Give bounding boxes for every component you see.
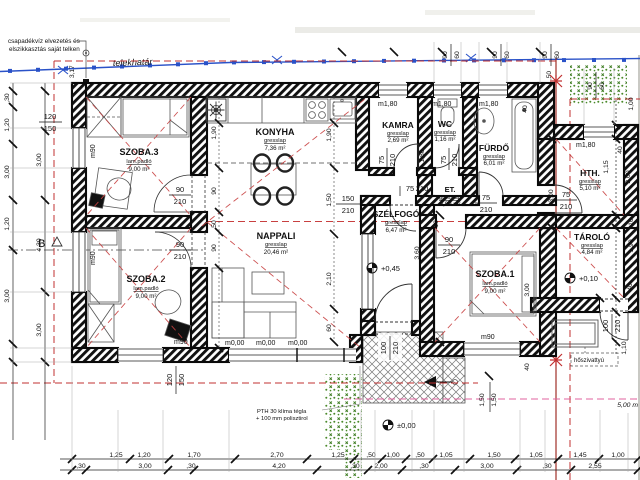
svg-text:gresslap: gresslap: [264, 138, 286, 144]
svg-text:210: 210: [174, 197, 187, 206]
svg-text:m1,80: m1,80: [479, 101, 499, 108]
svg-text:75: 75: [406, 184, 414, 193]
svg-text:2,10: 2,10: [326, 272, 333, 285]
svg-text:3,17: 3,17: [69, 65, 76, 78]
svg-text:,30: ,30: [350, 463, 360, 470]
svg-text:+0,10: +0,10: [579, 274, 598, 283]
svg-text:210: 210: [480, 205, 493, 214]
svg-text:2,70: 2,70: [270, 452, 283, 459]
svg-text:1,25: 1,25: [331, 452, 344, 459]
svg-text:100: 100: [601, 320, 610, 333]
svg-text:2,00: 2,00: [374, 463, 387, 470]
svg-text:75: 75: [562, 190, 570, 199]
svg-text:1,16 m²: 1,16 m²: [435, 136, 456, 143]
svg-text:1,00: 1,00: [628, 97, 635, 110]
svg-text:120: 120: [165, 374, 174, 387]
svg-text:ET.: ET.: [445, 185, 456, 194]
svg-text:120: 120: [44, 112, 57, 121]
svg-text:40: 40: [627, 283, 634, 291]
svg-text:,50: ,50: [366, 452, 376, 459]
svg-text:KAMRA: KAMRA: [382, 120, 414, 130]
svg-text:60: 60: [454, 51, 461, 59]
svg-text:1,90: 1,90: [211, 126, 218, 139]
svg-text:7,36 m²: 7,36 m²: [265, 145, 286, 152]
svg-text:csapadékvíz elvezetés és: csapadékvíz elvezetés és: [8, 38, 80, 45]
svg-text:3,00: 3,00: [524, 283, 531, 296]
svg-text:90: 90: [211, 244, 218, 252]
svg-text:hőszivattyú: hőszivattyú: [574, 358, 604, 364]
svg-text:3,60: 3,60: [414, 246, 421, 259]
svg-text:210: 210: [391, 342, 400, 355]
svg-text:210: 210: [174, 252, 187, 261]
svg-text:6,01 m²: 6,01 m²: [484, 160, 505, 167]
svg-text:10: 10: [433, 220, 440, 228]
svg-text:SZOBA.1: SZOBA.1: [475, 269, 514, 279]
svg-text:1,20: 1,20: [137, 452, 150, 459]
svg-text:60: 60: [554, 51, 561, 59]
svg-text:210: 210: [613, 320, 622, 333]
svg-text:3,00: 3,00: [36, 153, 43, 166]
svg-text:elszikkasztás saját telken: elszikkasztás saját telken: [9, 46, 80, 53]
svg-text:lam.padló: lam.padló: [126, 159, 151, 165]
svg-text:100: 100: [379, 342, 388, 355]
svg-text:SZÉLFOGÓ: SZÉLFOGÓ: [373, 208, 420, 219]
svg-text:3,00: 3,00: [4, 165, 11, 178]
svg-text:m1,80: m1,80: [378, 101, 398, 108]
svg-text:1,25: 1,25: [109, 452, 122, 459]
svg-text:SZOBA.3: SZOBA.3: [119, 147, 158, 157]
svg-text:4,84 m²: 4,84 m²: [582, 249, 603, 256]
svg-text:9,00 m²: 9,00 m²: [136, 293, 157, 300]
svg-text:60: 60: [326, 324, 333, 332]
svg-text:1,90: 1,90: [326, 128, 333, 141]
svg-text:3,00: 3,00: [548, 189, 555, 202]
svg-text:75: 75: [439, 156, 448, 164]
svg-text:FÜRDŐ: FÜRDŐ: [479, 142, 510, 153]
svg-text:210: 210: [416, 184, 429, 193]
svg-text:150: 150: [342, 194, 355, 203]
svg-text:9,00 m²: 9,00 m²: [485, 288, 506, 295]
svg-text:40: 40: [522, 105, 529, 113]
svg-text:3,00: 3,00: [138, 463, 151, 470]
svg-text:90: 90: [176, 240, 184, 249]
svg-text:m90: m90: [90, 251, 97, 265]
svg-text:TÁROLÓ: TÁROLÓ: [574, 231, 610, 242]
svg-text:1,90: 1,90: [628, 239, 635, 252]
svg-text:m90: m90: [174, 339, 188, 346]
svg-text:gresslap: gresslap: [385, 220, 407, 226]
svg-text:,30: ,30: [76, 463, 86, 470]
svg-text:SZOBA.2: SZOBA.2: [126, 274, 165, 284]
svg-text:210: 210: [342, 206, 355, 215]
svg-text:NAPPALI: NAPPALI: [257, 231, 296, 241]
svg-text:210: 210: [450, 154, 459, 167]
svg-text:1,05: 1,05: [529, 452, 542, 459]
svg-text:75: 75: [377, 156, 386, 164]
svg-text:6,47 m²: 6,47 m²: [386, 227, 407, 234]
svg-text:90: 90: [211, 187, 218, 195]
svg-text:WC: WC: [438, 119, 452, 129]
svg-text:1,50: 1,50: [479, 393, 486, 406]
svg-text:4,30: 4,30: [36, 238, 43, 251]
svg-text:3,00: 3,00: [4, 289, 11, 302]
svg-text:lam.padló: lam.padló: [482, 281, 507, 287]
svg-text:50: 50: [211, 220, 218, 228]
svg-text:,30: ,30: [419, 463, 429, 470]
svg-text:1,10: 1,10: [621, 341, 628, 354]
svg-text:5,10 m²: 5,10 m²: [580, 185, 601, 192]
svg-text:+0,45: +0,45: [381, 264, 400, 273]
svg-text:1,50: 1,50: [491, 393, 498, 406]
svg-text:5,00 m: 5,00 m: [617, 402, 638, 409]
svg-text:1,05: 1,05: [439, 452, 452, 459]
svg-text:m0,00: m0,00: [256, 340, 276, 347]
svg-text:1,50: 1,50: [326, 193, 333, 206]
svg-text:1,50: 1,50: [487, 452, 500, 459]
svg-text:10: 10: [628, 218, 635, 226]
svg-text:m90: m90: [481, 334, 495, 341]
svg-text:1,00: 1,00: [611, 452, 624, 459]
svg-text:4,20: 4,20: [272, 463, 285, 470]
svg-text:PTH 30 klíma tégla: PTH 30 klíma tégla: [257, 409, 307, 415]
svg-text:m0,00: m0,00: [288, 340, 308, 347]
svg-text:90: 90: [445, 235, 453, 244]
svg-text:3,00: 3,00: [36, 323, 43, 336]
svg-text:m90: m90: [90, 144, 97, 158]
svg-text:+ 100 mm polisztirol: + 100 mm polisztirol: [256, 416, 308, 422]
svg-text:150: 150: [177, 374, 186, 387]
svg-text:telekhatár: telekhatár: [113, 57, 154, 68]
svg-text:m1,80: m1,80: [576, 142, 596, 149]
svg-text:210: 210: [443, 247, 456, 256]
svg-text:2,00: 2,00: [625, 170, 632, 183]
svg-text:40: 40: [617, 146, 624, 154]
svg-text:1,45: 1,45: [573, 452, 586, 459]
svg-text:KONYHA: KONYHA: [255, 127, 295, 137]
svg-text:2,69 m²: 2,69 m²: [388, 137, 409, 144]
svg-text:±0,00: ±0,00: [397, 421, 416, 430]
svg-text:75: 75: [482, 193, 490, 202]
svg-text:1,70: 1,70: [187, 452, 200, 459]
svg-text:1,20: 1,20: [4, 217, 11, 230]
svg-text:,50: ,50: [415, 452, 425, 459]
svg-text:1,20: 1,20: [4, 118, 11, 131]
svg-text:60: 60: [599, 82, 606, 90]
svg-text:0,99 m²: 0,99 m²: [440, 201, 461, 208]
svg-text:90: 90: [176, 185, 184, 194]
svg-text:60: 60: [504, 51, 511, 59]
svg-text:90: 90: [587, 82, 594, 90]
svg-text:3,00: 3,00: [480, 463, 493, 470]
svg-text:40: 40: [524, 363, 531, 371]
svg-text:gresslap: gresslap: [265, 242, 287, 248]
svg-text:,30: ,30: [4, 93, 11, 103]
svg-text:m0,00: m0,00: [225, 340, 245, 347]
svg-text:210: 210: [388, 154, 397, 167]
svg-text:210: 210: [560, 202, 573, 211]
svg-text:lam.padló: lam.padló: [133, 286, 158, 292]
svg-text:m1,80: m1,80: [432, 101, 452, 108]
svg-text:,30: ,30: [186, 463, 196, 470]
svg-text:20,46 m²: 20,46 m²: [264, 249, 288, 256]
svg-text:1,00: 1,00: [386, 452, 399, 459]
svg-text:1,80: 1,80: [419, 149, 426, 162]
svg-text:,50: ,50: [546, 71, 553, 80]
svg-text:9,00 m²: 9,00 m²: [129, 166, 150, 173]
svg-text:1,15: 1,15: [603, 160, 610, 173]
svg-text:HTH.: HTH.: [580, 168, 600, 178]
svg-text:,30: ,30: [542, 463, 552, 470]
